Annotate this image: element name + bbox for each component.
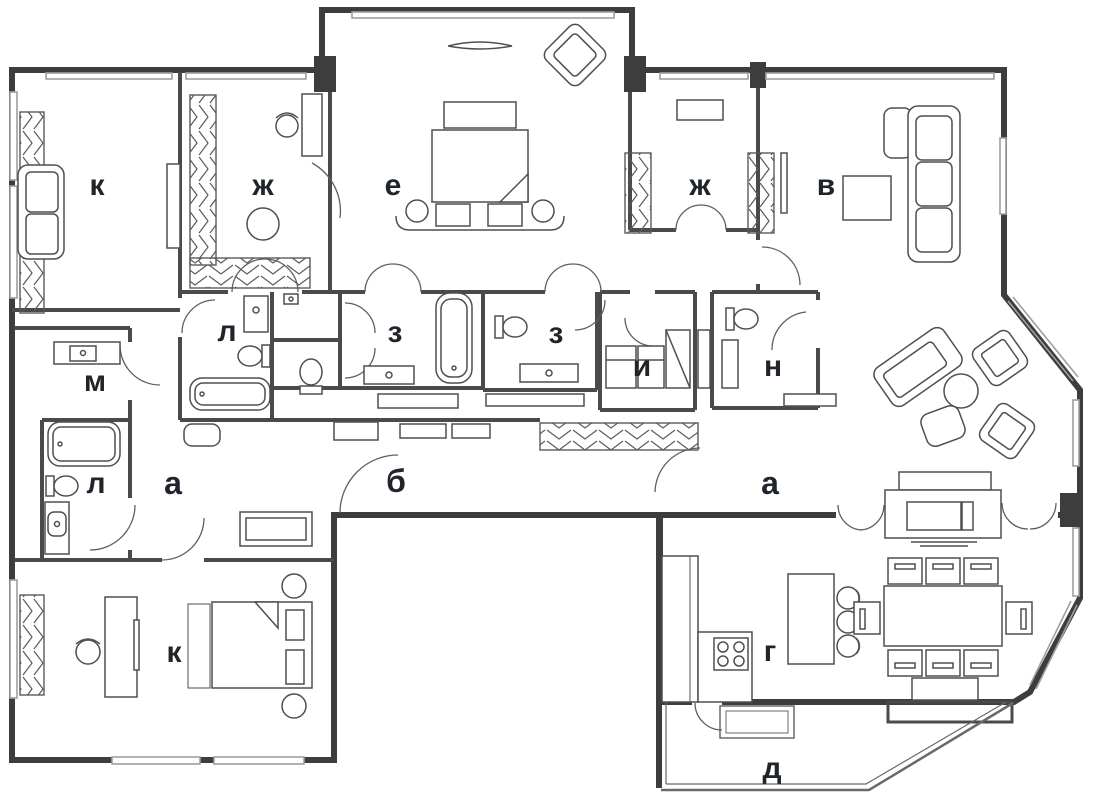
sink-drain [253, 307, 259, 313]
tv [781, 153, 787, 213]
wardrobe-hatch [625, 153, 651, 233]
shelf [784, 394, 836, 406]
kitchen-counter [662, 556, 698, 702]
pillow [286, 650, 304, 684]
window [214, 757, 304, 764]
toilet [503, 317, 527, 337]
room-label-bathroom-lower: л [86, 467, 105, 500]
window [1073, 528, 1079, 596]
chair [888, 558, 922, 584]
chair [1006, 602, 1032, 634]
dining-table [884, 586, 1002, 646]
chair-detail [933, 663, 953, 668]
shelf [677, 100, 723, 120]
log-holder [962, 502, 973, 530]
radiator-hatch [20, 595, 44, 695]
ottoman-round [247, 208, 279, 240]
sofa-study [18, 165, 64, 259]
sofa-cushion [916, 162, 952, 206]
cabinet [486, 394, 584, 406]
room-label-kitchen: г [764, 635, 777, 668]
sofa-cushion [916, 208, 952, 252]
bench-cushion [488, 204, 522, 226]
toilet [238, 346, 262, 366]
bathtub-drain [58, 442, 62, 446]
room-label-corridor: б [386, 463, 406, 499]
sink-drain [289, 297, 293, 301]
round-table [944, 374, 978, 408]
rug [188, 604, 210, 688]
bar-stool [837, 635, 859, 657]
toilet-tank [495, 316, 503, 338]
room-label-dressing-left: ж [251, 169, 274, 202]
window [10, 580, 17, 698]
pillow [286, 610, 304, 640]
chair-detail [971, 663, 991, 668]
monitor [134, 620, 139, 670]
room-label-bedroom-bottom: к [166, 636, 182, 669]
coffee-table [843, 176, 891, 220]
room-label-dressing-right: ж [688, 169, 711, 202]
room-label-laundry: м [84, 365, 106, 398]
cabinet [378, 394, 458, 408]
mantel-shelf [899, 472, 991, 490]
chair [276, 115, 298, 137]
room-label-master-bedroom: е [385, 169, 402, 202]
window [186, 73, 306, 79]
bathtub-drain [452, 366, 456, 370]
window [10, 186, 17, 298]
desk [105, 597, 137, 697]
room-label-utility: и [633, 350, 651, 383]
toilet [54, 476, 78, 496]
nightstand-round [282, 574, 306, 598]
chair-detail [895, 663, 915, 668]
room-label-hall-right: а [761, 465, 779, 501]
toilet-tank [726, 308, 734, 330]
sink-drain [55, 522, 60, 527]
toilet [734, 309, 758, 329]
toilet [300, 359, 322, 385]
wardrobe-hatch [748, 153, 774, 233]
bathtub-inner [195, 383, 265, 405]
room-label-balcony: д [762, 752, 781, 785]
bathtub-drain [200, 392, 204, 396]
chair-detail [895, 564, 915, 569]
window [10, 92, 17, 180]
laundry-fixtures [54, 342, 120, 364]
sofa-cushion [916, 116, 952, 160]
chair [926, 558, 960, 584]
room-label-living-room: в [817, 169, 835, 202]
headboard-shelf [444, 102, 516, 128]
pier [750, 62, 766, 88]
floor-plan-page: к ж е ж в л м з з и н л а б а г д к [0, 0, 1106, 805]
window [352, 12, 614, 18]
room-label-bath-center-left: з [388, 316, 403, 349]
cabinet [722, 340, 738, 388]
pier [314, 56, 336, 92]
window [46, 73, 172, 79]
kitchen-island [788, 574, 834, 664]
pier [624, 56, 646, 92]
chair [854, 602, 880, 634]
window [766, 73, 994, 79]
room-label-bath-center-right: з [549, 317, 564, 350]
chair [964, 558, 998, 584]
sink-drain [386, 372, 392, 378]
sink-drain [81, 351, 86, 356]
cabinet [452, 424, 490, 438]
tall-cabinet [167, 164, 180, 248]
chair-detail [1021, 609, 1026, 629]
sink [244, 296, 268, 332]
chair-detail [860, 609, 865, 629]
dressing-table [302, 94, 322, 156]
sofa-cushion [26, 172, 58, 212]
room-label-hall-left: а [164, 465, 182, 501]
toilet-tank [46, 476, 54, 496]
stool-round [406, 200, 428, 222]
firebox [907, 502, 961, 530]
cabinet [400, 424, 446, 438]
floor-plan-svg: к ж е ж в л м з з и н л а б а г д к [0, 0, 1106, 805]
sideboard [912, 678, 978, 700]
pier [1060, 493, 1080, 527]
chair-detail [933, 564, 953, 569]
wardrobe-inner [246, 518, 306, 540]
window [1073, 400, 1079, 466]
window [660, 73, 748, 79]
fireplace-unit [885, 472, 1001, 546]
window [112, 757, 200, 764]
cabinet [334, 422, 378, 440]
pouf [184, 424, 220, 446]
sink-drain [546, 370, 552, 376]
washer [606, 346, 636, 388]
window [1000, 138, 1006, 214]
chair-detail [971, 564, 991, 569]
toilet-tank [262, 345, 270, 367]
duct-shaft [698, 330, 710, 388]
corridor-wardrobe-hatch [540, 423, 698, 450]
radiator-hatch [20, 255, 44, 313]
sofa-cushion [26, 214, 58, 254]
nightstand-round [282, 694, 306, 718]
desk-chair [76, 640, 100, 664]
room-label-bathroom-upper: л [217, 315, 236, 348]
wardrobe-hatch [190, 95, 216, 265]
stool-round [532, 200, 554, 222]
room-label-wc: н [764, 350, 782, 383]
toilet-tank [300, 386, 322, 394]
room-label-study-top-left: к [89, 169, 105, 202]
bench-cushion [436, 204, 470, 226]
